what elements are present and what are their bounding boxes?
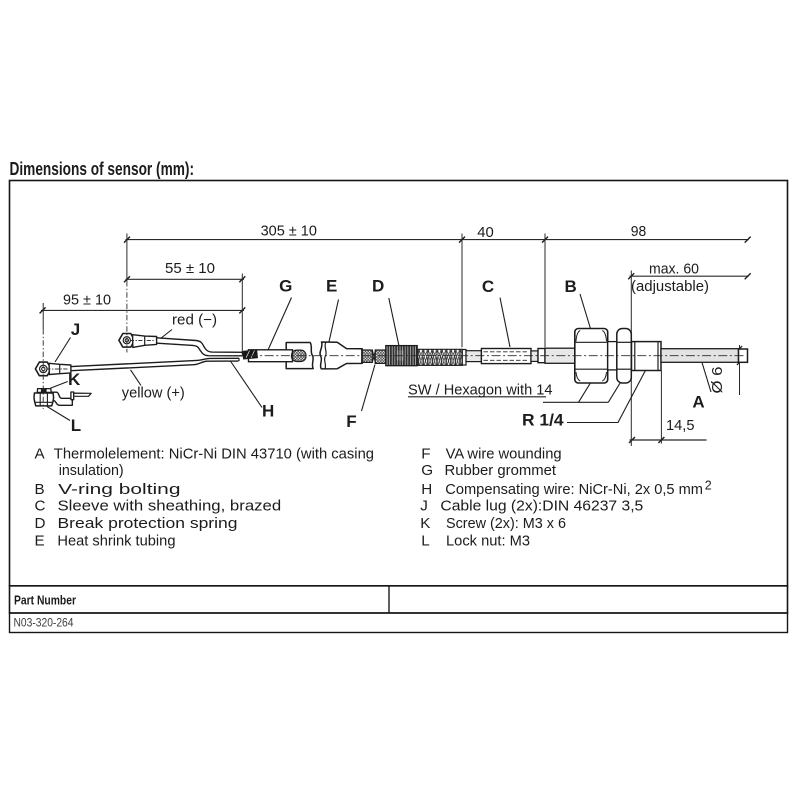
svg-text:Heat shrink tubing: Heat shrink tubing — [57, 533, 175, 550]
svg-text:98: 98 — [631, 223, 647, 240]
svg-text:Sleeve with sheathing, brazed: Sleeve with sheathing, brazed — [58, 498, 282, 515]
svg-text:Rubber grommet: Rubber grommet — [445, 462, 557, 479]
svg-text:H: H — [262, 402, 274, 421]
svg-text:305 ± 10: 305 ± 10 — [261, 223, 317, 240]
svg-text:yellow (+): yellow (+) — [122, 384, 185, 401]
svg-text:Dimensions of sensor (mm):: Dimensions of sensor (mm): — [10, 159, 195, 179]
svg-text:F: F — [346, 412, 356, 431]
svg-text:Lock nut: M3: Lock nut: M3 — [446, 533, 530, 550]
svg-text:14,5: 14,5 — [666, 417, 695, 434]
svg-text:C: C — [482, 277, 494, 296]
svg-text:Part Number: Part Number — [14, 592, 76, 607]
svg-text:insulation): insulation) — [59, 462, 124, 479]
svg-text:Ø 6: Ø 6 — [709, 367, 726, 394]
svg-text:B: B — [565, 277, 577, 296]
svg-text:D: D — [372, 277, 384, 296]
svg-text:max. 60: max. 60 — [649, 261, 699, 278]
svg-text:A: A — [692, 393, 704, 412]
svg-text:VA wire wounding: VA wire wounding — [446, 446, 562, 463]
svg-text:J: J — [420, 498, 428, 515]
svg-text:B: B — [35, 481, 45, 498]
svg-text:L: L — [71, 416, 81, 435]
svg-text:V-ring bolting: V-ring bolting — [58, 481, 180, 498]
svg-text:Break protection spring: Break protection spring — [58, 515, 238, 532]
svg-text:G: G — [279, 276, 292, 295]
svg-text:N03-320-264: N03-320-264 — [14, 616, 74, 630]
svg-text:H: H — [421, 481, 432, 498]
svg-text:J: J — [71, 320, 80, 339]
svg-text:Compensating wire: NiCr-Ni, 2x: Compensating wire: NiCr-Ni, 2x 0,5 mm — [445, 481, 703, 498]
svg-text:(adjustable): (adjustable) — [631, 278, 709, 295]
svg-text:Cable lug (2x):DIN 46237 3,5: Cable lug (2x):DIN 46237 3,5 — [440, 498, 643, 515]
svg-text:55 ± 10: 55 ± 10 — [165, 260, 215, 277]
svg-text:red (−): red (−) — [172, 312, 217, 329]
svg-text:E: E — [35, 533, 45, 550]
svg-text:C: C — [35, 498, 46, 515]
svg-text:SW / Hexagon with 14: SW / Hexagon with 14 — [408, 381, 553, 398]
svg-text:R 1/4: R 1/4 — [522, 411, 564, 430]
svg-text:F: F — [421, 446, 430, 463]
svg-text:A: A — [35, 446, 46, 463]
svg-text:E: E — [326, 277, 337, 296]
svg-text:K: K — [420, 515, 430, 532]
svg-text:L: L — [421, 533, 429, 550]
svg-text:G: G — [421, 462, 433, 479]
svg-text:95 ± 10: 95 ± 10 — [63, 292, 111, 309]
svg-text:2: 2 — [705, 478, 712, 492]
svg-text:40: 40 — [477, 224, 494, 241]
svg-text:Thermolelement: NiCr-Ni DIN 43: Thermolelement: NiCr-Ni DIN 43710 (with … — [54, 446, 374, 463]
svg-text:Screw (2x): M3 x 6: Screw (2x): M3 x 6 — [446, 515, 566, 532]
svg-text:D: D — [35, 515, 46, 532]
